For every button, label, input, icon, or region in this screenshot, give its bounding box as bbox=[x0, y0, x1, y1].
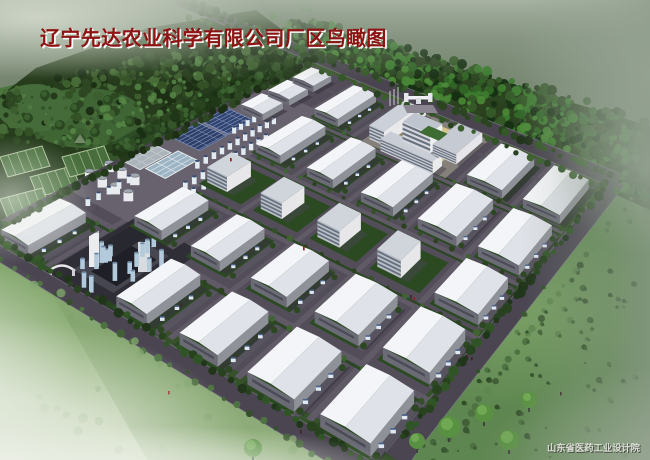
svg-text:山东省医药工业设计院: 山东省医药工业设计院 bbox=[547, 442, 641, 453]
svg-text:辽宁先达农业科学有限公司厂区鸟瞰图: 辽宁先达农业科学有限公司厂区鸟瞰图 bbox=[40, 26, 387, 50]
